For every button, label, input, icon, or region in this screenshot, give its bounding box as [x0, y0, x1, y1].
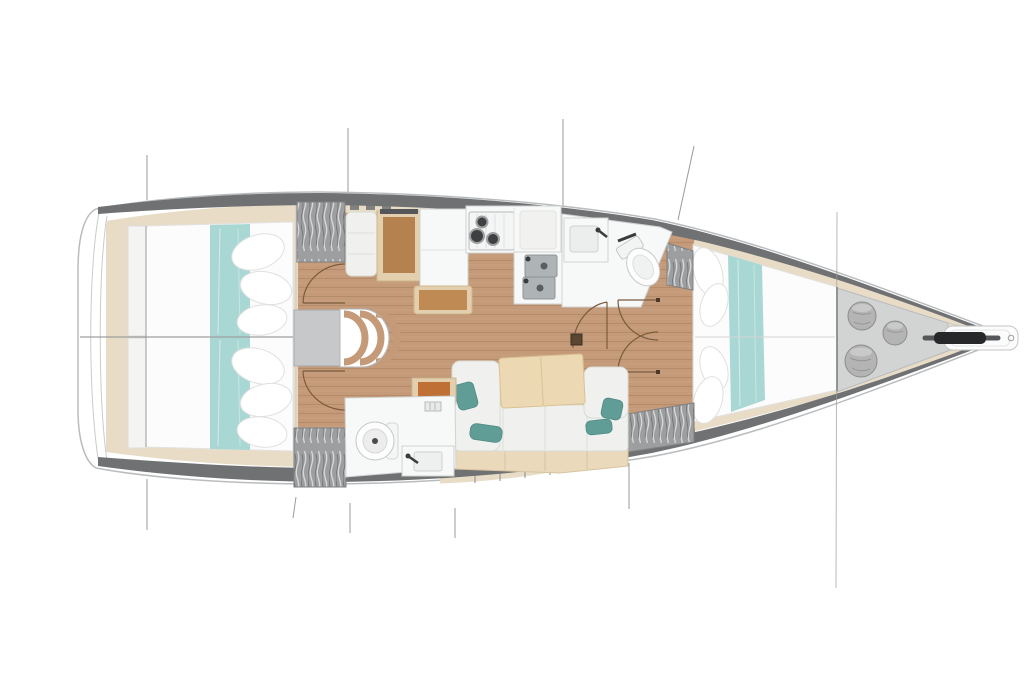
aft-head	[345, 396, 456, 477]
anchor-body	[934, 332, 986, 344]
teal-cushion	[585, 419, 612, 436]
yacht-floor-plan	[0, 0, 1024, 676]
aft-cabin-port	[128, 222, 295, 338]
burner	[470, 229, 484, 243]
salon-table	[499, 354, 586, 408]
instrument-panel	[380, 209, 418, 214]
floor-plan-canvas	[0, 0, 1024, 676]
nav-seat	[346, 212, 377, 276]
teal-cushion	[600, 397, 624, 421]
aft-head-basin	[414, 452, 442, 471]
burner	[487, 233, 499, 245]
sideboard-top	[419, 290, 467, 310]
galley-fridge-counter	[420, 209, 468, 287]
hanging-locker-aft-port	[297, 202, 345, 262]
vent-grille	[425, 402, 441, 411]
forestay-line	[836, 212, 837, 588]
companionway-landing	[294, 310, 342, 366]
head-basin	[570, 226, 598, 252]
cutting-board	[520, 211, 556, 249]
chart-table-top	[383, 217, 415, 273]
mast-step	[571, 334, 582, 345]
hanging-locker-fwd-port	[667, 243, 693, 290]
outboard-shelf	[128, 338, 146, 448]
burner	[477, 217, 488, 228]
aft-cabin-starboard	[128, 337, 295, 451]
companionway-stairs	[294, 309, 397, 367]
outboard-shelf	[128, 226, 146, 336]
settee-plinth	[455, 449, 628, 473]
hanging-locker-aft-starboard	[294, 428, 346, 487]
v-berth-runner	[728, 255, 765, 412]
